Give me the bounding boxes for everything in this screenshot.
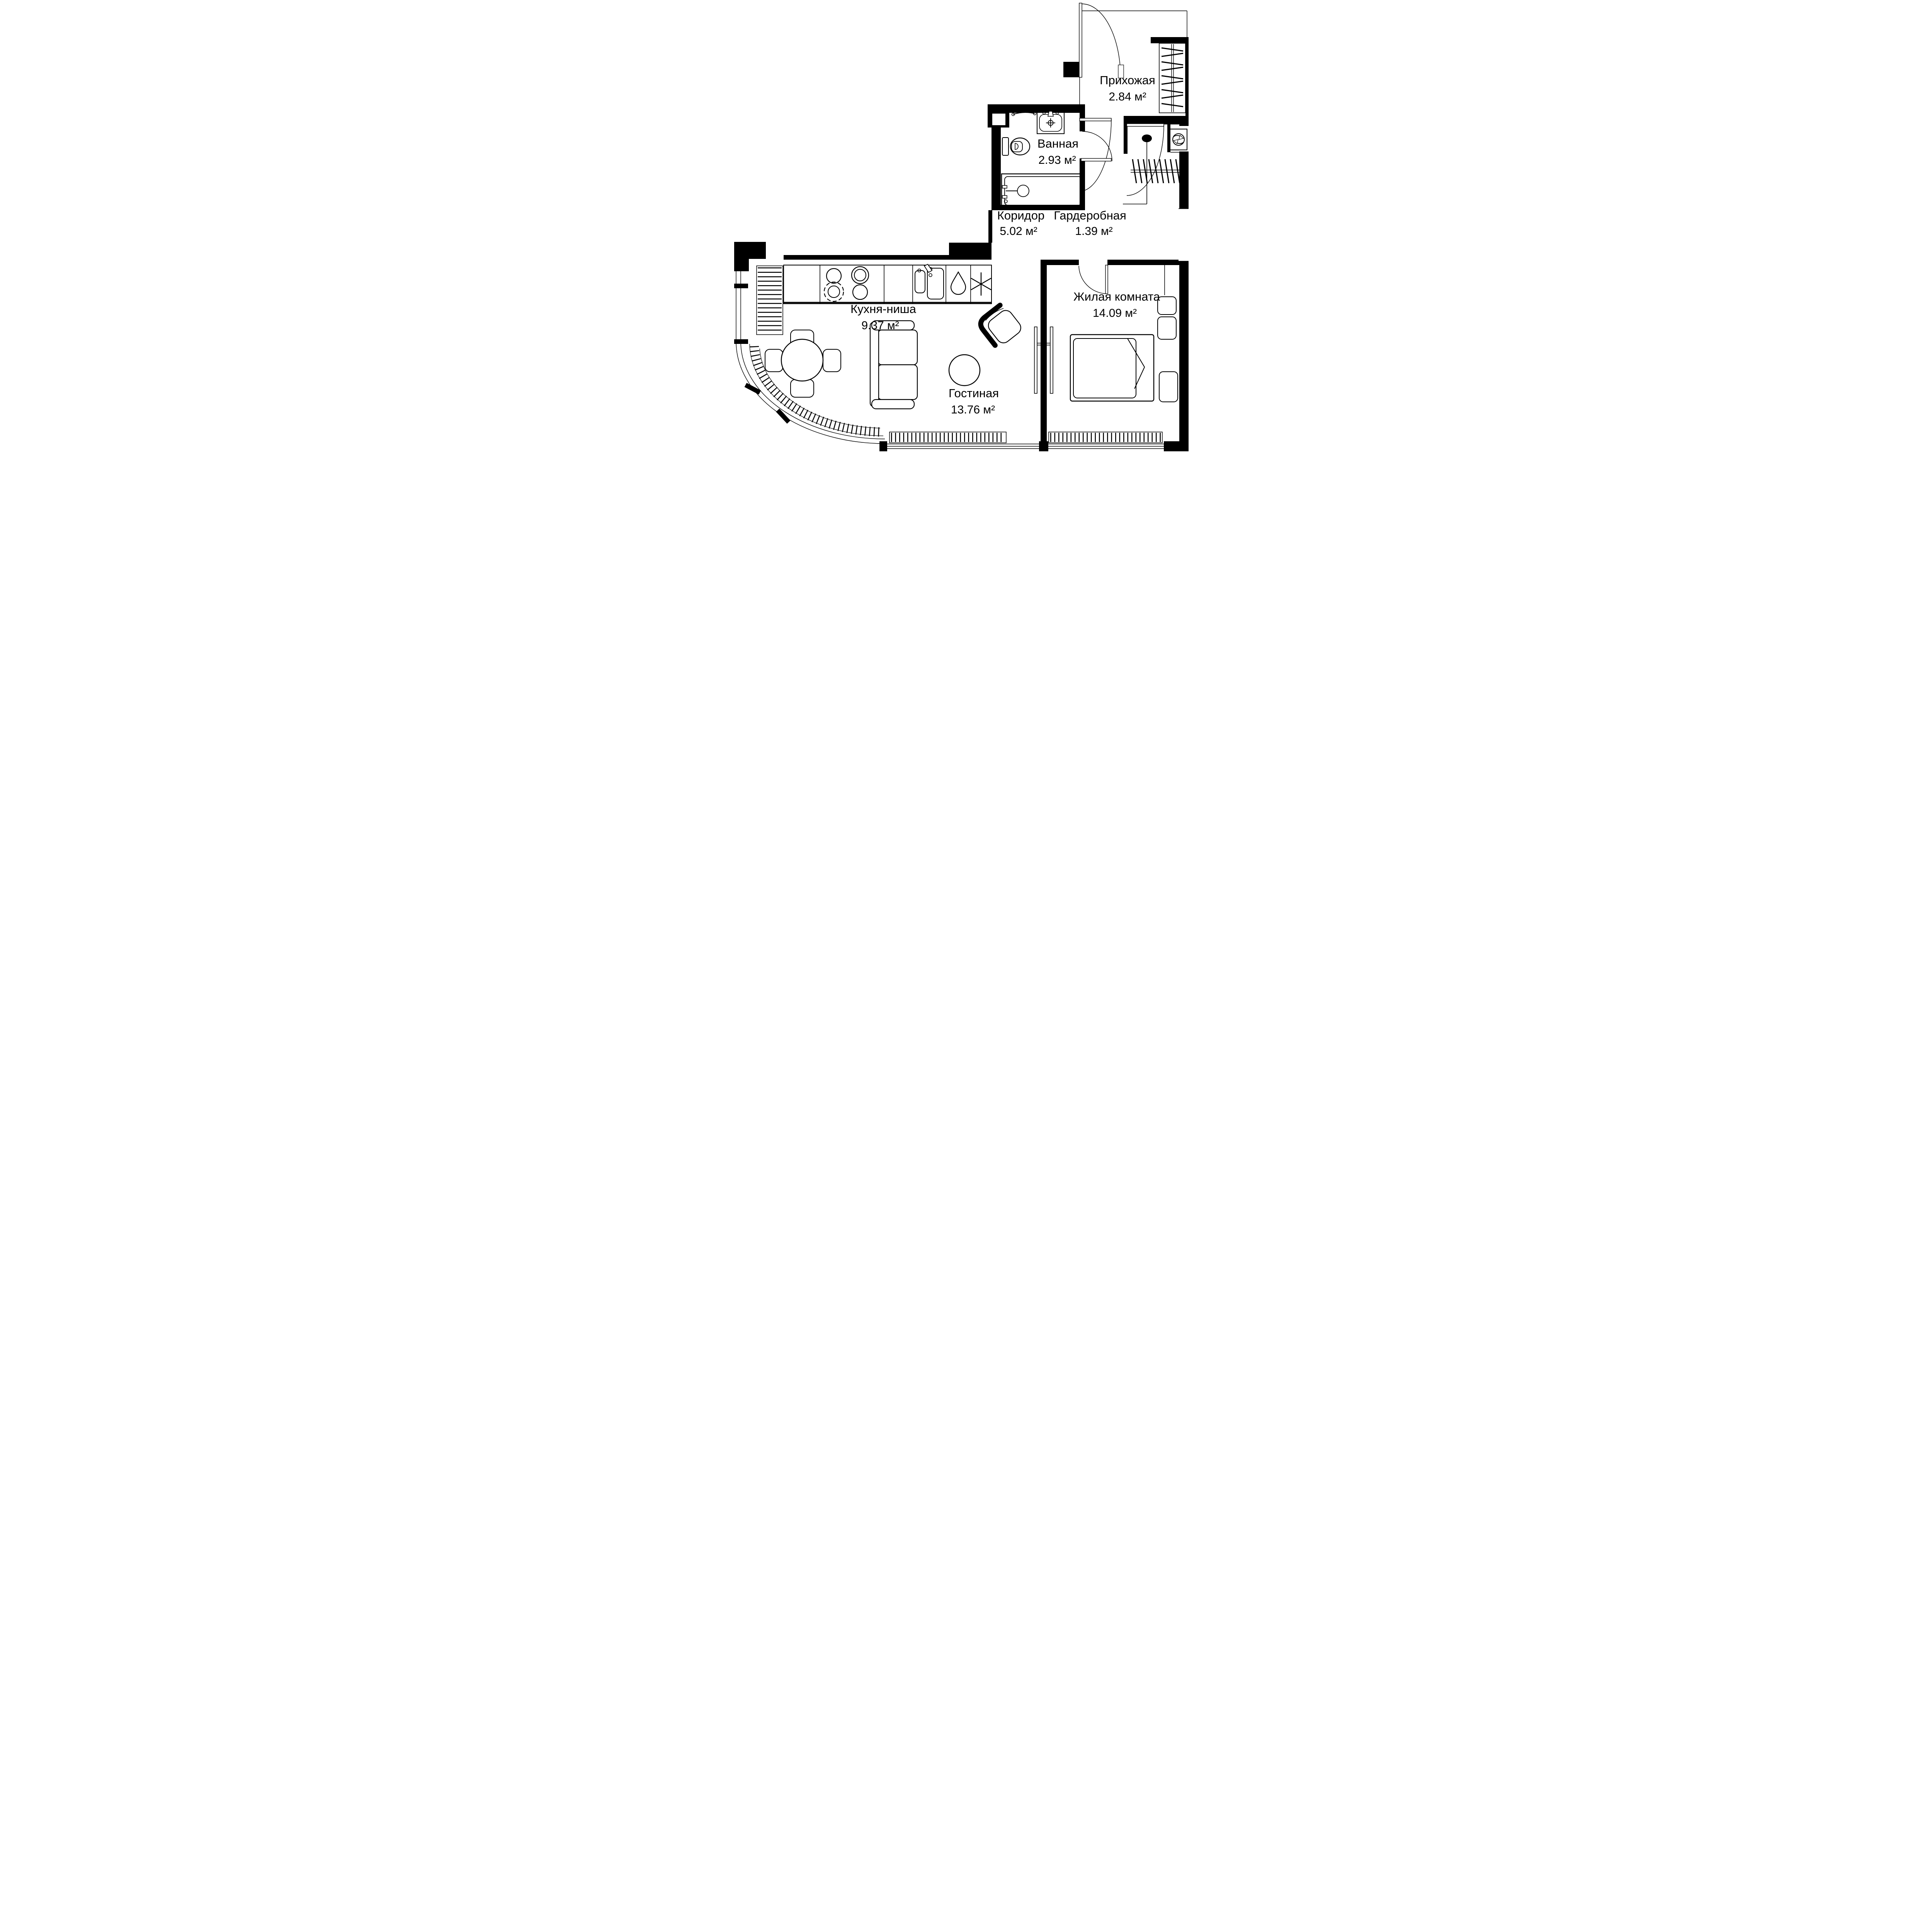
coat-hanger-rack xyxy=(1159,43,1185,113)
sofa-icon xyxy=(870,321,917,409)
label-corridor: Коридор xyxy=(997,209,1044,222)
area-bedroom: 14.09 м² xyxy=(1093,307,1137,320)
bed-icon xyxy=(1070,335,1154,401)
dining-table-icon xyxy=(781,339,823,381)
radiator-living xyxy=(889,432,1006,443)
floor-plan-drawing: Прихожая 2.84 м² Ванная 2.93 м² Коридор … xyxy=(734,0,1198,453)
label-bedroom: Жилая комната xyxy=(1073,290,1160,303)
nightstands xyxy=(1158,265,1178,402)
area-living: 13.76 м² xyxy=(951,403,995,416)
label-kitchen: Кухня-ниша xyxy=(850,302,917,316)
bathtub-icon xyxy=(1002,174,1084,208)
label-wardrobe: Гардеробная xyxy=(1054,209,1126,222)
radiator-kitchen-vertical xyxy=(757,266,783,335)
area-wardrobe: 1.39 м² xyxy=(1075,225,1112,238)
bedroom-door xyxy=(1079,265,1108,294)
label-bathroom: Ванная xyxy=(1037,137,1078,150)
bottom-window xyxy=(885,444,1189,449)
entrance-door xyxy=(1079,3,1124,78)
radiator-bedroom xyxy=(1049,432,1162,443)
kitchen-counter xyxy=(784,264,992,304)
area-corridor: 5.02 м² xyxy=(1000,225,1037,238)
toilet-icon xyxy=(1002,138,1030,155)
bathroom-door xyxy=(1081,131,1112,161)
armchair-icon xyxy=(978,303,1024,349)
label-hallway: Прихожая xyxy=(1100,73,1155,87)
coffee-table-icon xyxy=(949,355,980,386)
floor-plan-page: Прихожая 2.84 м² Ванная 2.93 м² Коридор … xyxy=(734,0,1198,453)
area-bathroom: 2.93 м² xyxy=(1038,154,1076,167)
area-hallway: 2.84 м² xyxy=(1109,90,1146,103)
washing-machine-icon xyxy=(1170,129,1187,150)
washbasin-icon xyxy=(1037,111,1064,134)
label-living: Гостиная xyxy=(949,386,999,400)
area-kitchen: 9.37 м² xyxy=(861,319,899,332)
